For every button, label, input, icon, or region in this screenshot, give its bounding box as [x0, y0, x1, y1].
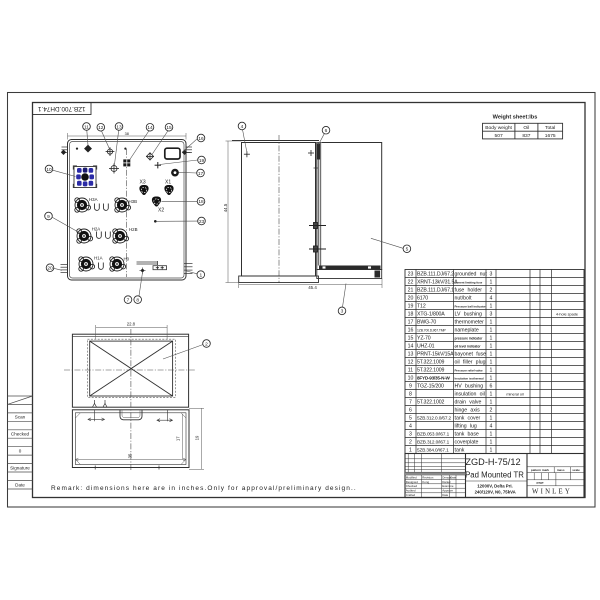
svg-text:H3B: H3B [129, 199, 138, 204]
svg-text:X3: X3 [140, 180, 146, 186]
svg-text:Date: Date [442, 493, 448, 497]
svg-text:H0: H0 [124, 257, 130, 262]
svg-text:Pad Mounted TR: Pad Mounted TR [465, 471, 524, 480]
svg-text:7: 7 [127, 297, 130, 303]
svg-text:scale: scale [572, 468, 580, 472]
svg-text:38: 38 [125, 132, 129, 136]
svg-text:17: 17 [408, 320, 414, 326]
svg-text:current limiting fuse: current limiting fuse [455, 280, 483, 284]
svg-text:1: 1 [490, 400, 493, 406]
svg-text:H2A: H2A [92, 227, 101, 232]
svg-text:BZB.053.0/I67.1: BZB.053.0/I67.1 [417, 432, 450, 437]
svg-text:HV bushing: HV bushing [455, 384, 484, 390]
svg-text:20: 20 [408, 296, 414, 302]
svg-text:pattern mark: pattern mark [531, 468, 550, 472]
svg-text:Weight sheet:lbs: Weight sheet:lbs [493, 115, 538, 121]
svg-text:X1: X1 [165, 180, 171, 186]
svg-text:1: 1 [409, 448, 412, 454]
svg-text:BZB.111.DJ/67.2: BZB.111.DJ/67.2 [417, 272, 454, 278]
svg-text:YZ-70: YZ-70 [417, 336, 431, 342]
svg-text:nameplate: nameplate [455, 328, 479, 334]
svg-text:Date: Date [450, 475, 456, 479]
svg-text:bayonet fuse: bayonet fuse [455, 352, 487, 358]
svg-text:XRNT-13kV/31.5A: XRNT-13kV/31.5A [417, 280, 458, 286]
svg-text:page: page [536, 480, 543, 484]
svg-text:Body weight: Body weight [485, 125, 512, 131]
svg-text:4: 4 [490, 296, 493, 302]
svg-text:1: 1 [490, 344, 493, 350]
svg-text:Date: Date [15, 482, 25, 487]
svg-text:mineral oil: mineral oil [506, 392, 523, 396]
svg-text:WINLEY: WINLEY [532, 488, 572, 495]
svg-text:6170: 6170 [417, 296, 428, 302]
svg-text:4: 4 [409, 424, 412, 430]
svg-text:2: 2 [490, 408, 493, 414]
svg-text:1: 1 [490, 328, 493, 334]
svg-text:PRNT-15kV/15A: PRNT-15kV/15A [417, 352, 454, 358]
svg-text:240/120V, N0, 75kVA: 240/120V, N0, 75kVA [475, 489, 516, 494]
svg-text:6: 6 [490, 384, 493, 390]
svg-text:1: 1 [490, 336, 493, 342]
svg-text:tank: tank [455, 448, 465, 454]
svg-text:thermometer: thermometer [455, 320, 485, 326]
svg-text:1: 1 [490, 416, 493, 422]
svg-text:44.5: 44.5 [223, 203, 228, 212]
svg-text:3: 3 [490, 272, 493, 278]
svg-text:Revision: Revision [422, 475, 433, 479]
svg-text:18: 18 [408, 312, 414, 318]
svg-text:1: 1 [490, 304, 493, 310]
svg-text:20: 20 [47, 266, 53, 272]
svg-text:Approve: Approve [442, 489, 453, 493]
svg-text:1ZB.700.DH74.1: 1ZB.700.DH74.1 [38, 105, 86, 112]
svg-text:12000V, Delta Pri.: 12000V, Delta Pri. [477, 483, 512, 488]
svg-text:15: 15 [166, 125, 172, 131]
svg-text:9: 9 [47, 214, 50, 220]
svg-text:XTG-1/800A: XTG-1/800A [417, 312, 445, 318]
svg-text:12: 12 [408, 360, 414, 366]
svg-text:5T.322.1009: 5T.322.1009 [417, 368, 444, 374]
svg-text:11: 11 [408, 368, 413, 374]
svg-text:14: 14 [408, 344, 414, 350]
svg-text:507: 507 [495, 133, 503, 139]
svg-text:16: 16 [408, 328, 414, 334]
svg-text:coverplate: coverplate [455, 440, 479, 446]
svg-text:10: 10 [46, 167, 52, 173]
svg-text:45.4: 45.4 [308, 285, 317, 290]
svg-text:14: 14 [147, 125, 153, 131]
svg-text:837: 837 [522, 133, 530, 139]
svg-text:6: 6 [409, 408, 412, 414]
svg-text:1675: 1675 [545, 133, 556, 139]
svg-text:1ZB.700.DJ/67.TMP: 1ZB.700.DJ/67.TMP [417, 329, 447, 333]
svg-text:Audited: Audited [406, 489, 416, 493]
svg-text:lifting lug: lifting lug [455, 424, 477, 430]
svg-text:H2B: H2B [129, 227, 138, 232]
svg-text:grounded nut: grounded nut [455, 272, 488, 278]
svg-text:fuse holder: fuse holder [455, 288, 483, 294]
svg-text:2: 2 [409, 440, 412, 446]
svg-text:H3A: H3A [89, 197, 98, 202]
svg-text:Daniel: Daniel [442, 480, 451, 484]
svg-text:1: 1 [490, 376, 493, 382]
svg-text:17: 17 [175, 436, 180, 441]
svg-text:13: 13 [408, 352, 414, 358]
svg-text:5T.322.1002: 5T.322.1002 [417, 400, 444, 406]
svg-text:2: 2 [490, 288, 493, 294]
svg-text:5T.322.1009: 5T.322.1009 [417, 360, 444, 366]
svg-text:5: 5 [409, 416, 412, 422]
svg-text:LV bushing: LV bushing [455, 312, 482, 318]
svg-text:Kong: Kong [422, 480, 429, 484]
svg-text:1: 1 [490, 320, 493, 326]
svg-text:35: 35 [128, 453, 133, 458]
svg-text:15: 15 [408, 336, 414, 342]
svg-text:11: 11 [84, 124, 89, 130]
svg-text:1: 1 [490, 448, 493, 454]
svg-text:1: 1 [490, 352, 493, 358]
svg-text:oil filler plug: oil filler plug [455, 360, 486, 366]
svg-text:2: 2 [205, 341, 208, 347]
svg-text:H1A: H1A [94, 255, 103, 260]
svg-text:Checked: Checked [11, 432, 30, 437]
svg-text:Scan: Scan [15, 415, 26, 420]
svg-text:Signature: Signature [10, 465, 30, 470]
svg-text:22: 22 [408, 280, 414, 286]
svg-text:1: 1 [490, 392, 493, 398]
svg-text:22.8: 22.8 [127, 322, 136, 327]
svg-text:X2: X2 [158, 208, 164, 214]
svg-text:4-hole spade: 4-hole spade [556, 312, 578, 316]
svg-text:tank cover: tank cover [455, 416, 481, 422]
svg-text:Total: Total [545, 125, 555, 131]
svg-text:tank base: tank base [455, 432, 479, 438]
svg-text:Designed: Designed [406, 480, 419, 484]
svg-text:BZB.312.0/I67.1: BZB.312.0/I67.1 [417, 440, 450, 445]
svg-text:Examine: Examine [442, 484, 454, 488]
svg-text:6: 6 [325, 128, 328, 134]
svg-text:pressure indicator: pressure indicator [455, 336, 484, 340]
svg-text:19: 19 [199, 158, 205, 164]
svg-text:4: 4 [490, 424, 493, 430]
svg-text:3: 3 [490, 312, 493, 318]
svg-text:18: 18 [198, 199, 204, 205]
svg-text:insulation oil: insulation oil [455, 392, 485, 398]
svg-text:4: 4 [241, 124, 244, 130]
svg-text:1: 1 [490, 280, 493, 286]
svg-text:nut/bolt: nut/bolt [455, 296, 473, 302]
svg-text:9: 9 [409, 384, 412, 390]
svg-text:13: 13 [116, 124, 122, 130]
svg-text:10: 10 [408, 376, 414, 382]
svg-text:8: 8 [409, 392, 412, 398]
svg-text:drain valve: drain valve [455, 400, 482, 406]
svg-text:1: 1 [490, 360, 493, 366]
svg-text:BZB.111.DJ/67.1: BZB.111.DJ/67.1 [417, 288, 454, 294]
svg-text:Oil: Oil [523, 125, 529, 131]
svg-text:23: 23 [199, 219, 205, 225]
svg-text:Pressure relief valve: Pressure relief valve [455, 368, 484, 372]
svg-text:T12: T12 [417, 304, 426, 310]
svg-text:TGZ-15/200: TGZ-15/200 [417, 384, 444, 390]
svg-text:8FYD-93/35-N-W: 8FYD-93/35-N-W [417, 376, 451, 381]
svg-text:3: 3 [341, 309, 344, 315]
svg-text:16: 16 [198, 136, 204, 142]
svg-text:5: 5 [406, 247, 409, 253]
svg-text:mass: mass [557, 468, 565, 472]
svg-text:8: 8 [136, 297, 139, 303]
svg-text:Crafted: Crafted [406, 493, 416, 497]
svg-text:Checked: Checked [406, 484, 418, 488]
svg-text:Remark: dimensions here are i: Remark: dimensions here are in inches.On… [51, 485, 357, 492]
svg-text:21: 21 [408, 288, 414, 294]
svg-text:12: 12 [98, 125, 104, 131]
svg-text:5ZB.312.0.0/67.2: 5ZB.312.0.0/67.2 [417, 416, 452, 421]
svg-text:UHZ-01: UHZ-01 [417, 344, 435, 350]
svg-text:BWG-70: BWG-70 [417, 320, 436, 326]
svg-text:Modified: Modified [406, 475, 417, 479]
svg-text:Insulation isothermal: Insulation isothermal [455, 376, 484, 380]
svg-text:3: 3 [409, 432, 412, 438]
svg-text:hinge axis: hinge axis [455, 408, 481, 414]
svg-text:19: 19 [195, 435, 200, 440]
svg-text:19: 19 [408, 304, 414, 310]
svg-text:1: 1 [490, 368, 493, 374]
svg-text:5ZB.384.0/I67.1: 5ZB.384.0/I67.1 [417, 448, 449, 453]
svg-text:0: 0 [19, 449, 22, 454]
svg-text:Pressure ball indicator: Pressure ball indicator [455, 304, 487, 308]
svg-text:23: 23 [408, 272, 414, 278]
svg-text:oil level indicator: oil level indicator [455, 344, 482, 348]
svg-text:1: 1 [490, 432, 493, 438]
svg-text:1: 1 [199, 272, 202, 278]
svg-text:7: 7 [409, 400, 412, 406]
svg-text:17: 17 [198, 171, 204, 177]
svg-text:ZGD-H-75/12: ZGD-H-75/12 [465, 457, 520, 467]
svg-text:1: 1 [490, 440, 493, 446]
